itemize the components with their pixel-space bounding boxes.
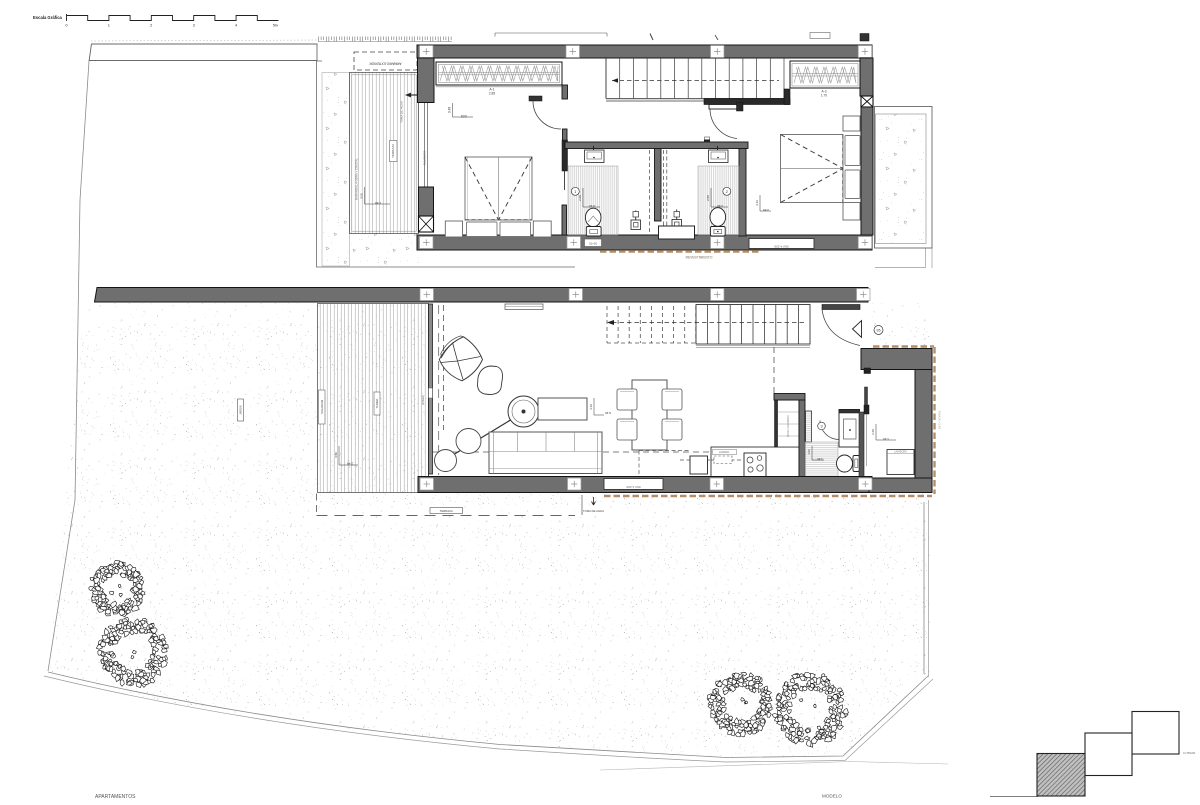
svg-text:2.05: 2.05 [706, 195, 710, 201]
svg-text:5m: 5m [273, 24, 278, 28]
svg-text:3: 3 [193, 24, 195, 28]
svg-text:TOMA DE AGUA: TOMA DE AGUA [400, 101, 404, 123]
svg-text:Escala Gráfica: Escala Gráfica [33, 15, 63, 20]
svg-text:3.00: 3.00 [360, 193, 364, 199]
svg-text:1.00: 1.00 [807, 449, 811, 455]
svg-text:3: 3 [820, 425, 822, 429]
svg-text:01+05: 01+05 [589, 241, 597, 245]
svg-text:BARANDILLA OBRA + CRISTAL: BARANDILLA OBRA + CRISTAL [355, 158, 359, 200]
svg-text:MODELO: MODELO [822, 794, 842, 799]
svg-text:TARIMA: TARIMA [375, 398, 379, 408]
svg-text:2.40: 2.40 [347, 462, 353, 466]
svg-text:2.10: 2.10 [589, 204, 595, 208]
svg-text:1.50: 1.50 [375, 201, 381, 205]
svg-text:1.70: 1.70 [821, 94, 827, 98]
svg-text:1: 1 [108, 24, 110, 28]
svg-text:3.48: 3.48 [448, 107, 452, 113]
svg-text:LAVAVAJ.: LAVAVAJ. [719, 451, 730, 454]
svg-text:3.16: 3.16 [755, 200, 759, 206]
svg-text:4: 4 [235, 24, 237, 28]
svg-text:REVESTIMIENTO: REVESTIMIENTO [686, 256, 713, 260]
svg-text:2.60: 2.60 [871, 429, 875, 435]
svg-text:APARTAMENTOS: APARTAMENTOS [95, 794, 136, 800]
svg-text:SOLARIUM: SOLARIUM [320, 399, 324, 414]
svg-text:4.10: 4.10 [589, 404, 593, 410]
svg-text:ARMARIO EXTERIOR: ARMARIO EXTERIOR [369, 62, 402, 66]
svg-text:05V 4.200: 05V 4.200 [626, 485, 640, 489]
svg-text:S5: S5 [876, 329, 880, 333]
svg-text:TOMA DE AGUA: TOMA DE AGUA [583, 509, 604, 513]
svg-text:4.50: 4.50 [334, 452, 338, 458]
svg-text:06V 4.200: 06V 4.200 [774, 245, 788, 249]
svg-text:JARDIN: JARDIN [239, 405, 243, 414]
svg-text:2.05: 2.05 [578, 195, 582, 201]
svg-text:2: 2 [150, 24, 152, 28]
svg-text:FRIGO+COLUMNAS: FRIGO+COLUMNAS [787, 415, 790, 437]
svg-text:1.35: 1.35 [817, 457, 823, 461]
svg-text:3.05: 3.05 [461, 114, 467, 118]
svg-text:0: 0 [66, 24, 68, 28]
svg-text:TERRAZA: TERRAZA [440, 509, 453, 513]
svg-text:2.80: 2.80 [763, 208, 769, 212]
svg-text:TERRAZA: TERRAZA [391, 144, 395, 158]
svg-text:C/ PINAR: C/ PINAR [1183, 751, 1195, 755]
svg-text:LAVADORA: LAVADORA [894, 451, 907, 454]
svg-text:1.90: 1.90 [717, 204, 723, 208]
svg-text:1.30: 1.30 [883, 437, 889, 441]
svg-text:P.BAJA +1.40: P.BAJA +1.40 [938, 411, 942, 430]
svg-text:2.85: 2.85 [489, 92, 496, 96]
svg-text:6.25: 6.25 [605, 411, 611, 415]
svg-text:(2M+4R): (2M+4R) [421, 395, 425, 405]
